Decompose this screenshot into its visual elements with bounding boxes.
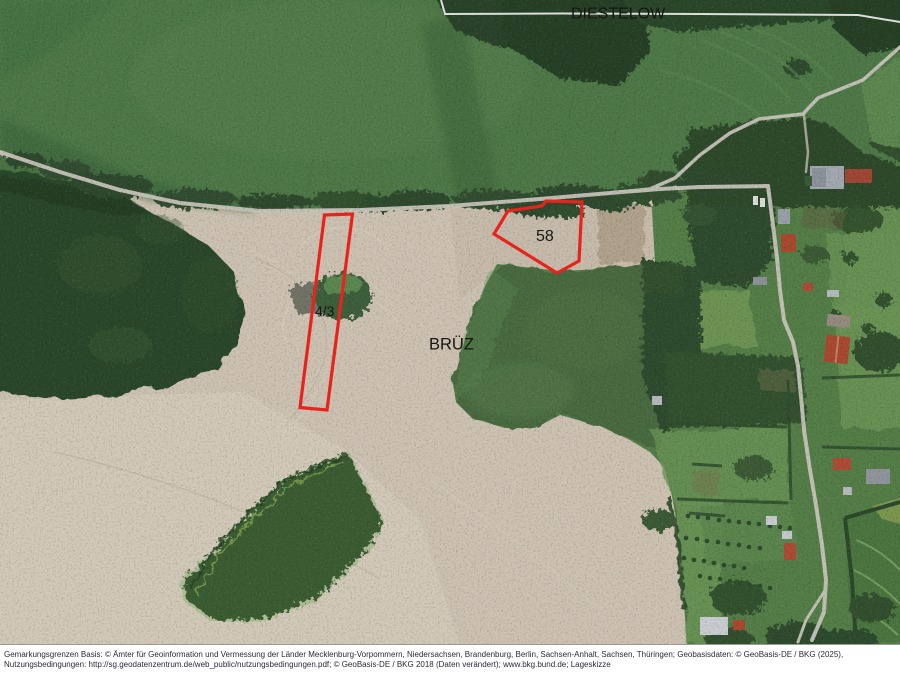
svg-text:58: 58 <box>536 228 554 245</box>
svg-text:4/3: 4/3 <box>315 303 335 319</box>
svg-text:BRÜZ: BRÜZ <box>429 336 474 354</box>
svg-text:DIESTELOW: DIESTELOW <box>571 6 666 23</box>
svg-text:Nutzungsbedingungen: http://sg: Nutzungsbedingungen: http://sg.geodatenz… <box>4 660 611 669</box>
svg-text:Gemarkungsgrenzen Basis: © Ämt: Gemarkungsgrenzen Basis: © Ämter für Geo… <box>4 650 843 659</box>
